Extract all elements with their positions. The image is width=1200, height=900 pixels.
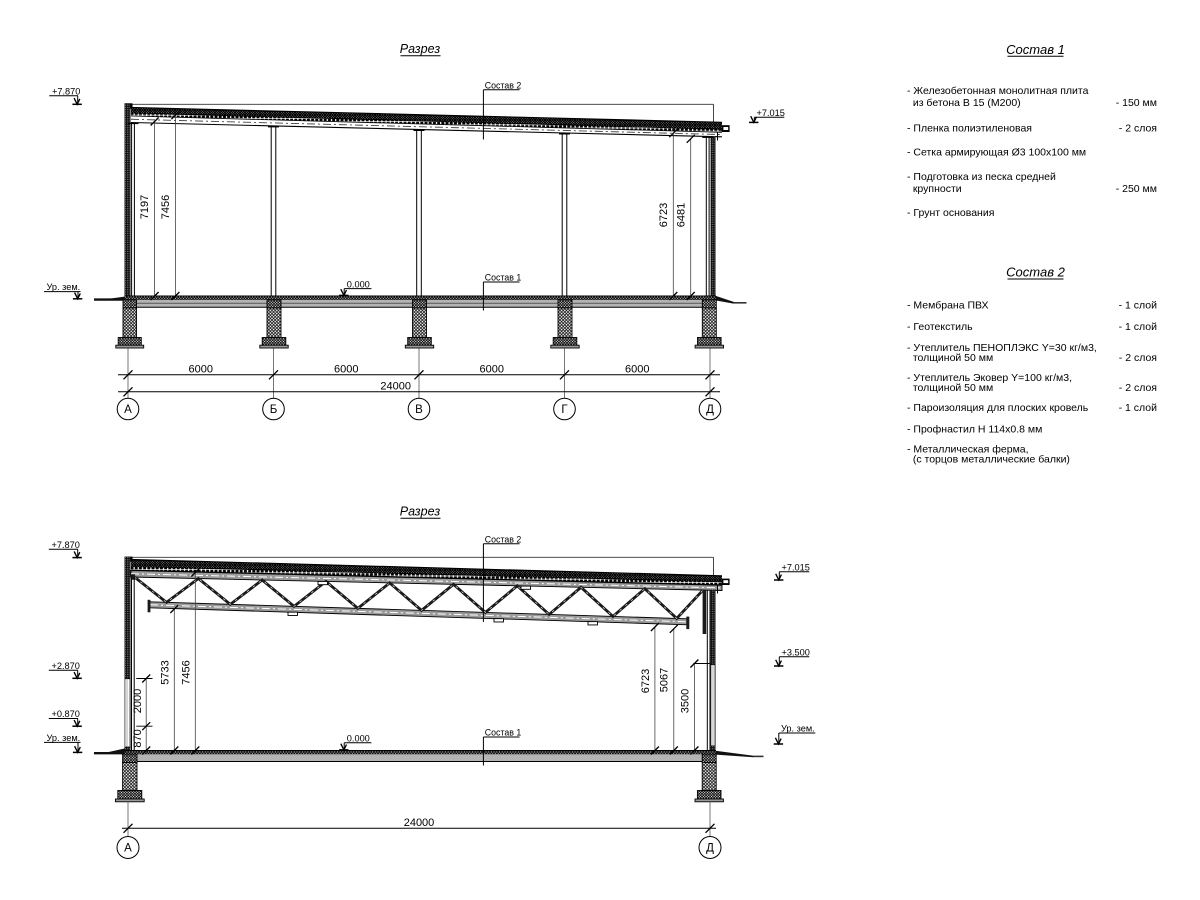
svg-text:0.000: 0.000 bbox=[347, 734, 370, 744]
svg-text:А: А bbox=[124, 843, 132, 855]
svg-text:Состав 2: Состав 2 bbox=[485, 80, 522, 90]
svg-text:5733: 5733 bbox=[160, 660, 172, 684]
svg-text:+7.015: +7.015 bbox=[757, 108, 785, 118]
svg-text:6723: 6723 bbox=[658, 203, 670, 227]
svg-text:Б: Б bbox=[270, 404, 278, 416]
svg-text:Д: Д bbox=[706, 843, 714, 855]
svg-text:+7.870: +7.870 bbox=[52, 86, 80, 96]
svg-text:крупности: крупности bbox=[907, 183, 962, 195]
svg-text:- 250 мм: - 250 мм bbox=[1116, 183, 1157, 195]
svg-text:- Мембрана ПВХ: - Мембрана ПВХ bbox=[907, 300, 989, 312]
svg-text:24000: 24000 bbox=[380, 381, 411, 393]
svg-text:- Профнастил Н 114х0.8 мм: - Профнастил Н 114х0.8 мм bbox=[907, 423, 1042, 435]
svg-text:- 1 слой: - 1 слой bbox=[1119, 321, 1158, 333]
svg-text:- Железобетонная монолитная п: - Железобетонная монолитная плита bbox=[907, 85, 1089, 97]
svg-text:- Подготовка из песка средней: - Подготовка из песка средней bbox=[907, 171, 1056, 183]
svg-text:- Пароизоляция для плоских кро: - Пароизоляция для плоских кровель bbox=[907, 402, 1089, 414]
svg-text:0.000: 0.000 bbox=[347, 279, 370, 289]
svg-text:+7.015: +7.015 bbox=[782, 562, 810, 572]
svg-text:А: А bbox=[124, 404, 132, 416]
svg-text:Разрез: Разрез bbox=[400, 505, 441, 519]
svg-text:- Грунт основания: - Грунт основания bbox=[907, 207, 994, 219]
svg-text:5067: 5067 bbox=[659, 668, 671, 692]
svg-text:+3.500: +3.500 bbox=[782, 647, 810, 657]
svg-text:- 1 слой: - 1 слой bbox=[1119, 402, 1158, 414]
svg-text:6000: 6000 bbox=[189, 364, 213, 376]
svg-text:6000: 6000 bbox=[334, 364, 358, 376]
svg-text:Ур. зем.: Ур. зем. bbox=[781, 724, 815, 734]
svg-text:2000: 2000 bbox=[132, 689, 144, 713]
svg-text:из бетона В 15 (М200): из бетона В 15 (М200) bbox=[907, 97, 1021, 109]
svg-text:толщиной 50 мм: толщиной 50 мм bbox=[907, 382, 993, 394]
svg-text:- 2 слоя: - 2 слоя bbox=[1119, 123, 1157, 135]
svg-text:Г: Г bbox=[561, 404, 568, 416]
svg-text:- 1 слой: - 1 слой bbox=[1119, 300, 1158, 312]
svg-text:6723: 6723 bbox=[640, 669, 652, 693]
svg-text:7456: 7456 bbox=[180, 660, 192, 684]
svg-text:7456: 7456 bbox=[160, 195, 172, 219]
svg-text:Д: Д bbox=[706, 404, 714, 416]
svg-text:- 2 слоя: - 2 слоя bbox=[1119, 382, 1157, 394]
svg-text:870: 870 bbox=[132, 729, 144, 747]
svg-text:6000: 6000 bbox=[480, 364, 504, 376]
svg-text:Ур. зем.: Ур. зем. bbox=[47, 282, 81, 292]
svg-text:Состав 2: Состав 2 bbox=[485, 534, 522, 544]
svg-text:толщиной 50 мм: толщиной 50 мм bbox=[907, 352, 993, 364]
svg-text:Состав 1: Состав 1 bbox=[485, 273, 522, 283]
svg-text:(с торцов металлические балки): (с торцов металлические балки) bbox=[907, 453, 1070, 465]
svg-text:Состав 1: Состав 1 bbox=[485, 728, 522, 738]
svg-text:- Геотекстиль: - Геотекстиль bbox=[907, 321, 973, 333]
svg-text:- 2 слоя: - 2 слоя bbox=[1119, 352, 1157, 364]
svg-text:Состав 2: Состав 2 bbox=[1006, 265, 1065, 280]
svg-text:- Пленка полиэтиленовая: - Пленка полиэтиленовая bbox=[907, 123, 1032, 135]
svg-text:+2.870: +2.870 bbox=[52, 661, 80, 671]
svg-text:3500: 3500 bbox=[679, 689, 691, 713]
svg-text:6481: 6481 bbox=[676, 203, 688, 227]
svg-text:+0.870: +0.870 bbox=[52, 709, 80, 719]
svg-text:+7.870: +7.870 bbox=[52, 540, 80, 550]
svg-text:7197: 7197 bbox=[139, 195, 151, 219]
svg-text:24000: 24000 bbox=[404, 817, 435, 829]
svg-text:6000: 6000 bbox=[625, 364, 649, 376]
svg-text:Состав 1: Состав 1 bbox=[1006, 42, 1065, 57]
svg-text:- Сетка армирующая Ø3 100х100: - Сетка армирующая Ø3 100х100 мм bbox=[907, 147, 1086, 159]
svg-text:Ур. зем.: Ур. зем. bbox=[47, 733, 81, 743]
svg-text:- 150 мм: - 150 мм bbox=[1116, 97, 1157, 109]
svg-text:В: В bbox=[415, 404, 423, 416]
svg-text:Разрез: Разрез bbox=[400, 42, 441, 56]
